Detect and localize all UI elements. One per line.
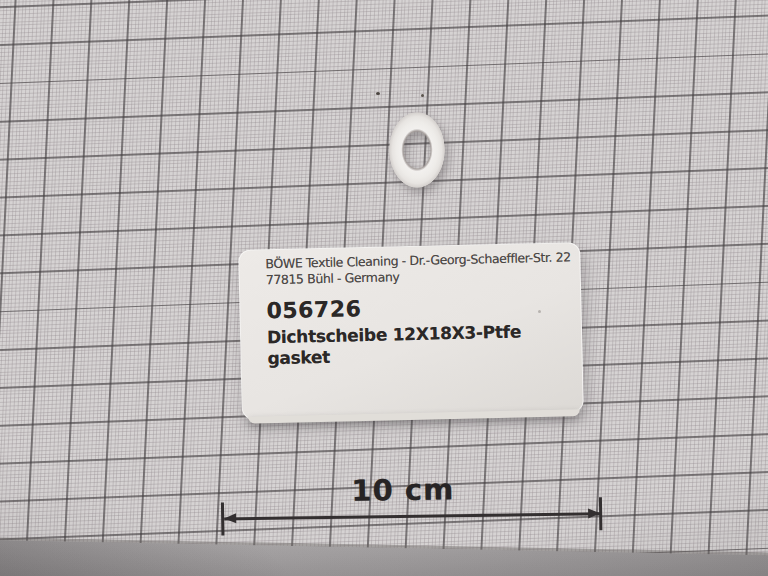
product-photo: BÖWE Textile Cleaning - Dr.-Georg-Schaef… bbox=[0, 0, 768, 576]
gasket-ring bbox=[389, 112, 445, 188]
dust-speck bbox=[538, 310, 541, 313]
dust-speck bbox=[421, 94, 424, 97]
part-description: Dichtscheibe 12X18X3-Ptfe gasket bbox=[267, 321, 568, 369]
product-label: BÖWE Textile Cleaning - Dr.-Georg-Schaef… bbox=[238, 242, 584, 420]
scale-label: 10 cm bbox=[198, 470, 608, 510]
arrowhead-right-icon bbox=[588, 508, 600, 518]
part-number: 056726 bbox=[266, 292, 566, 324]
scale-marker: 10 cm bbox=[198, 470, 609, 540]
dust-speck bbox=[376, 92, 380, 95]
arrowhead-left-icon bbox=[224, 513, 236, 523]
scale-arrow-line bbox=[224, 512, 600, 520]
